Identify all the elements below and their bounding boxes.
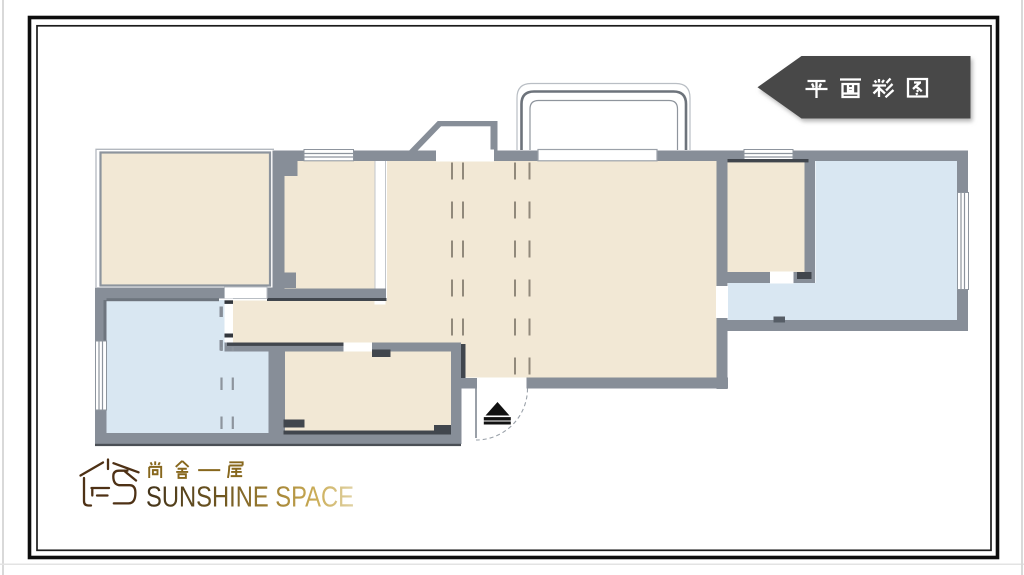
svg-text:SUNSHINE SPACE: SUNSHINE SPACE bbox=[146, 482, 354, 514]
